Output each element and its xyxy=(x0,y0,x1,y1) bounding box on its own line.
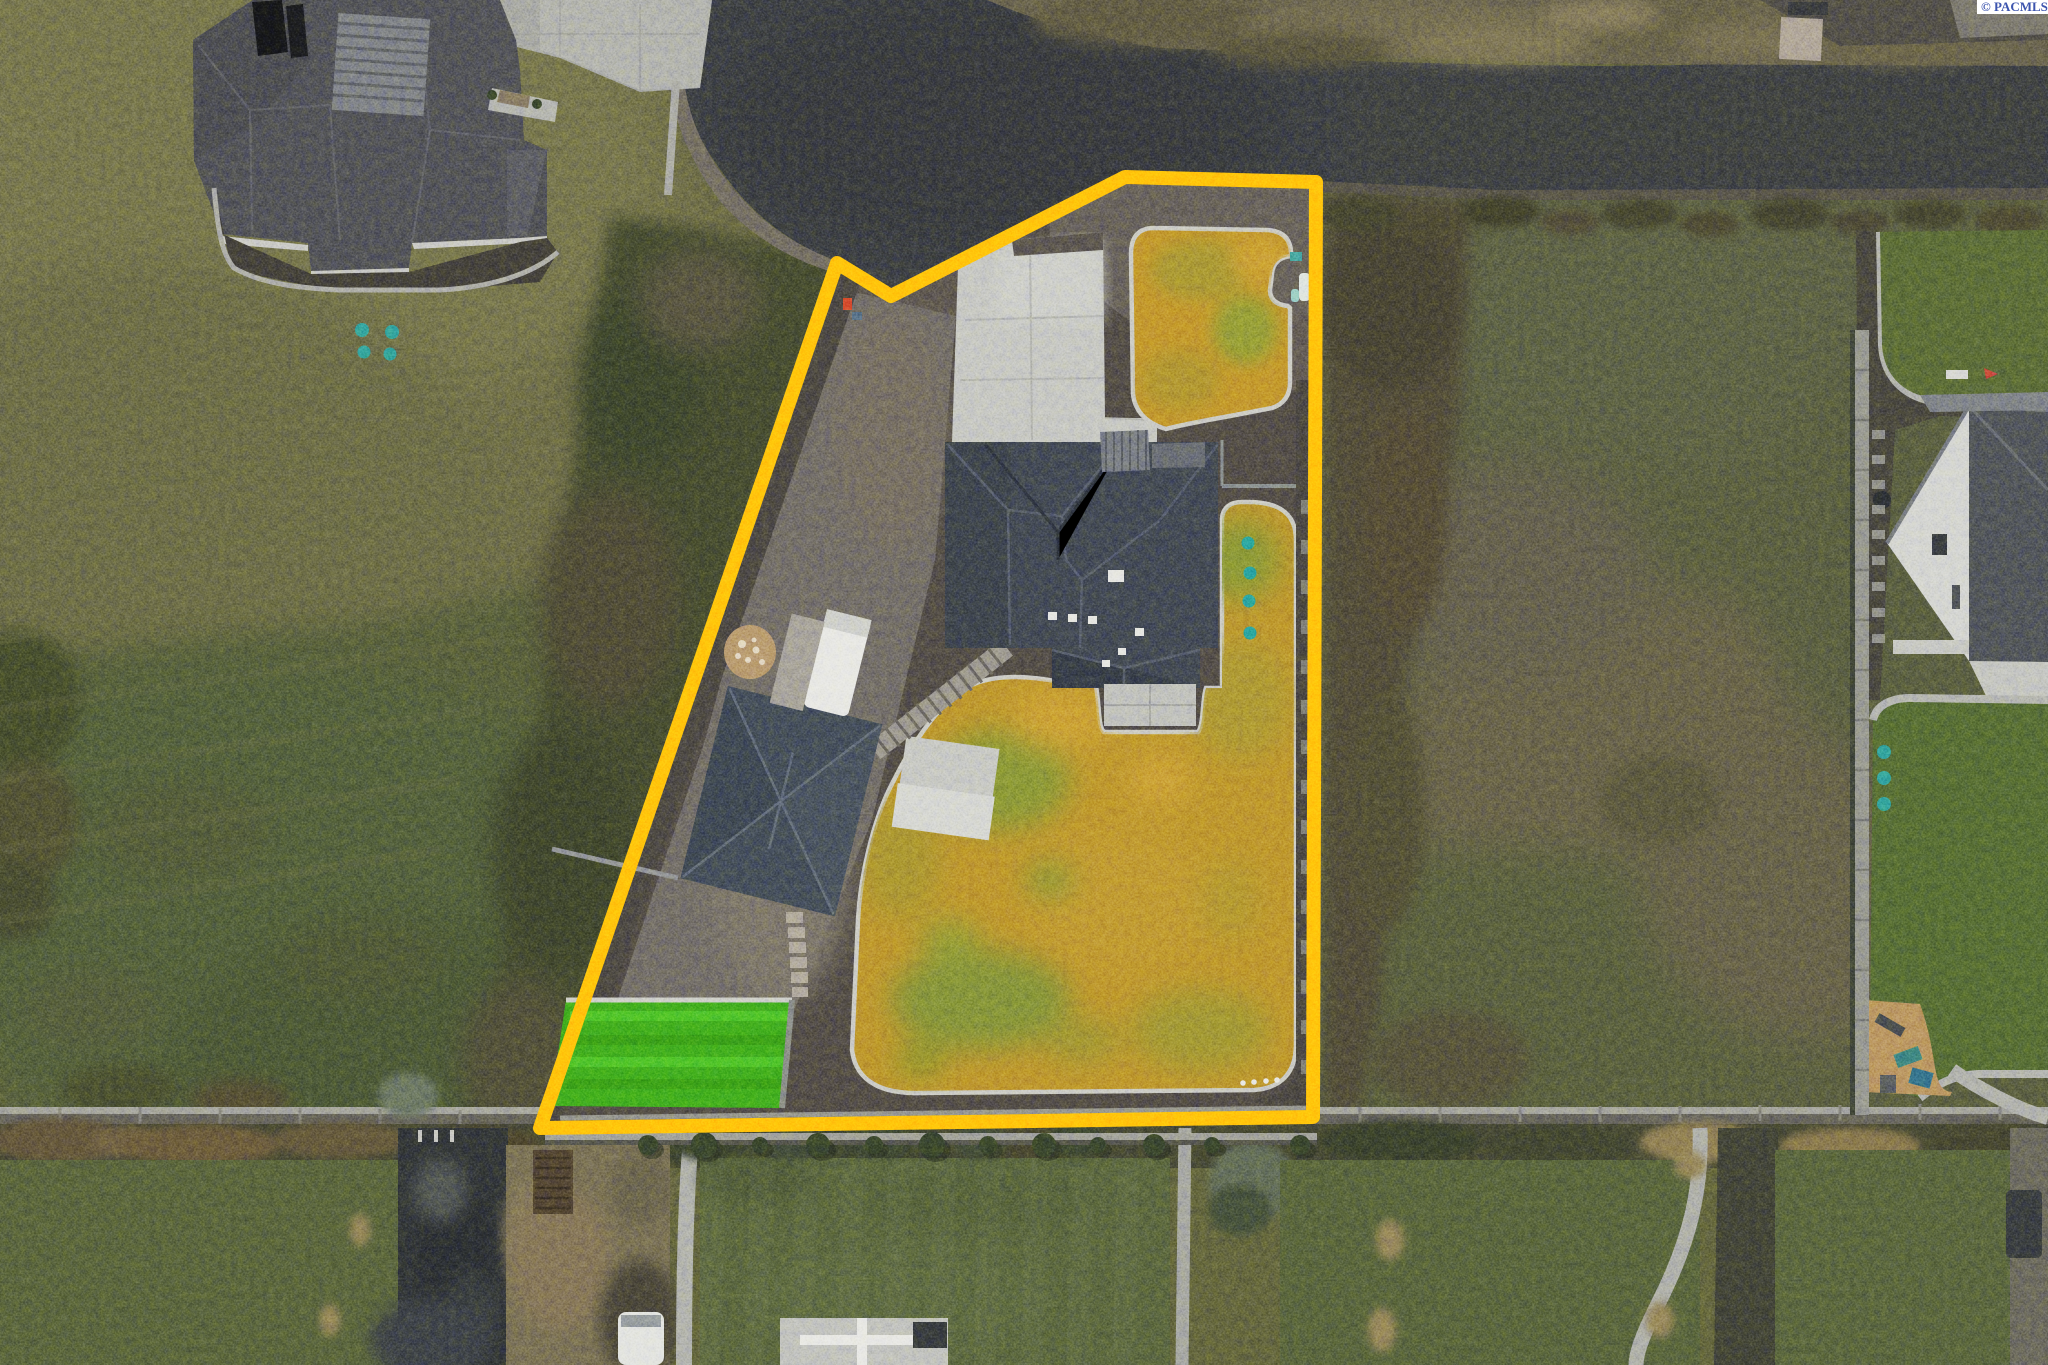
svg-text:© PACMLS: © PACMLS xyxy=(1981,0,2048,14)
